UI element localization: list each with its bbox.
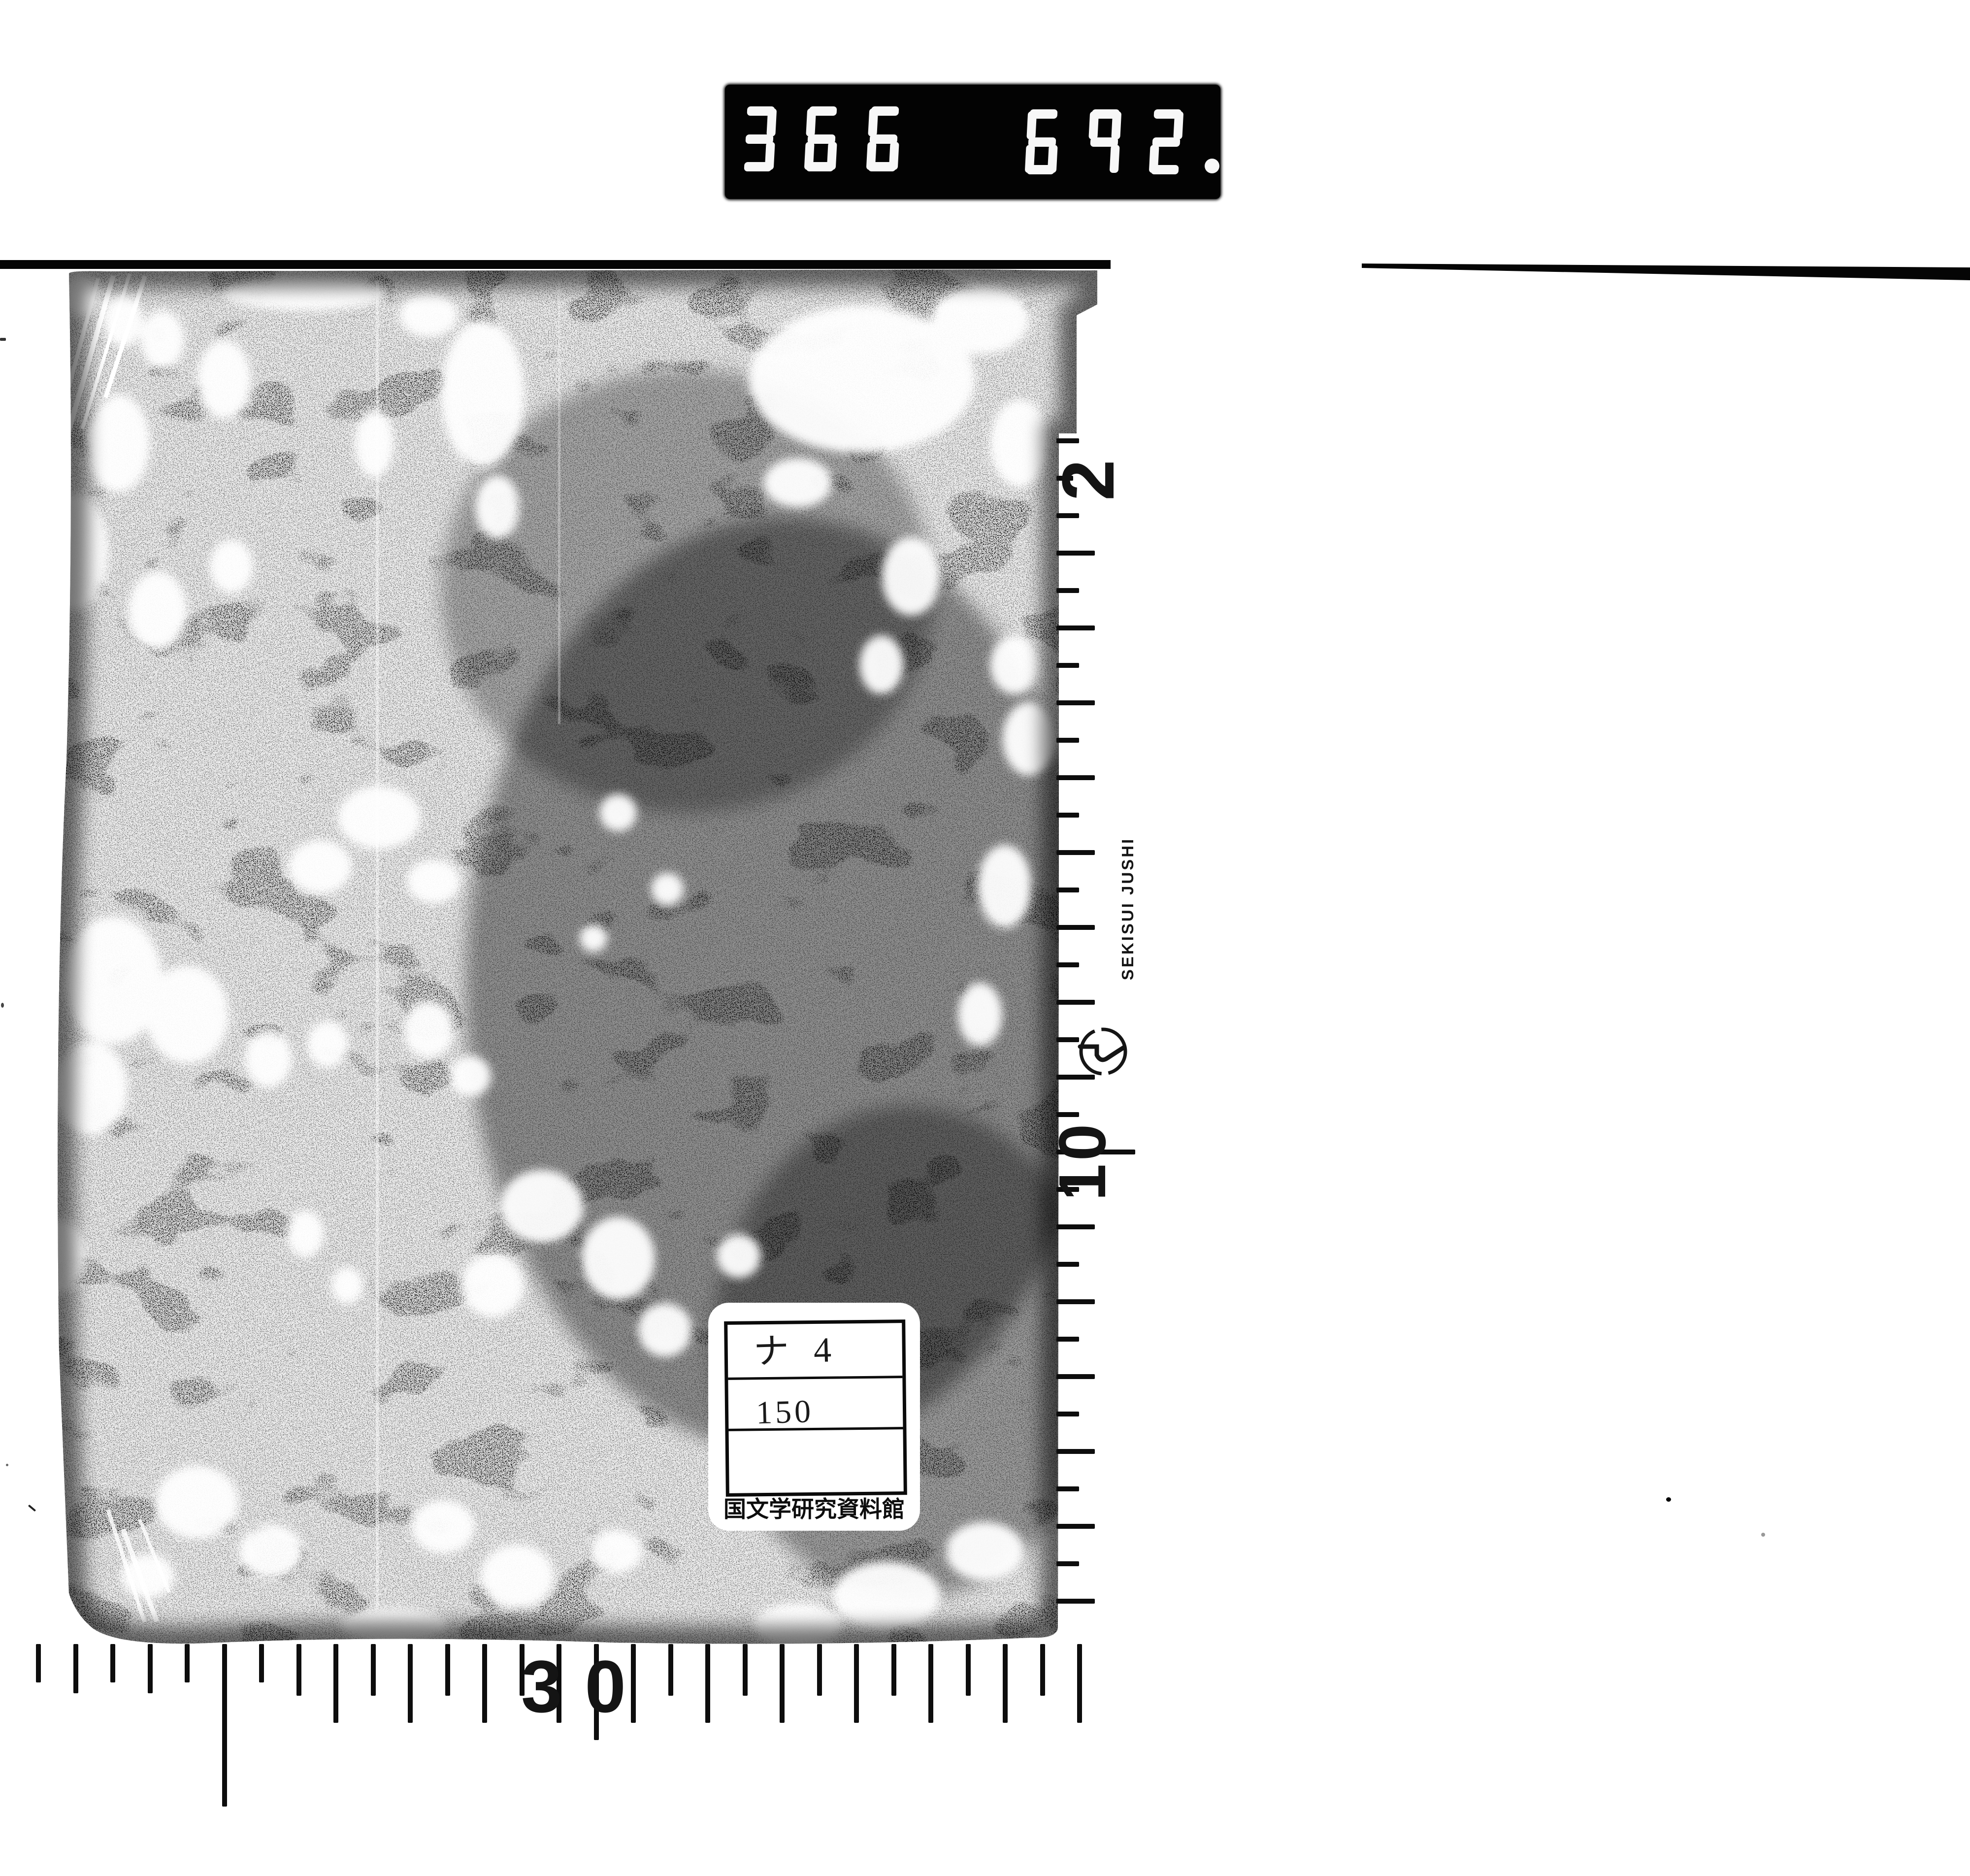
ruler-brand-text: SEKISUI JUSHI bbox=[1117, 810, 1139, 1007]
call-number-row-3 bbox=[728, 1429, 903, 1487]
institution-name: 国文学研究資料館 bbox=[717, 1491, 911, 1524]
ruler-tick bbox=[743, 1644, 748, 1696]
call-number-row-1: ナ 4 bbox=[727, 1323, 902, 1380]
ruler-tick bbox=[1056, 850, 1095, 855]
catalog-label-box: ナ 4 150 bbox=[724, 1319, 907, 1497]
ruler-tick bbox=[296, 1644, 301, 1696]
ruler-tick bbox=[854, 1644, 859, 1723]
ruler-tick bbox=[966, 1644, 971, 1696]
dust-speck bbox=[1666, 1497, 1671, 1502]
ruler-tick bbox=[1056, 1374, 1095, 1379]
ruler-tick bbox=[1056, 625, 1095, 630]
counter-right-digits bbox=[1026, 109, 1219, 174]
seven-seg-digit bbox=[804, 106, 839, 171]
dust-speck bbox=[1761, 1533, 1765, 1537]
ruler-tick bbox=[36, 1644, 41, 1682]
ruler-tick bbox=[110, 1644, 115, 1682]
ruler-tick bbox=[1003, 1644, 1008, 1723]
microfilm-scan-page: 2 SEKISUI JUSHI 10 30 ナ 4 150 国文学研究資料館 bbox=[0, 0, 1970, 1876]
ruler-tick bbox=[371, 1644, 376, 1696]
ruler-tick bbox=[780, 1644, 785, 1723]
ruler-tick bbox=[185, 1644, 190, 1682]
ruler-tick bbox=[73, 1644, 78, 1693]
seven-seg-digit bbox=[1087, 109, 1122, 174]
ruler-tick bbox=[1056, 775, 1095, 780]
seven-seg-digit bbox=[1025, 109, 1060, 174]
ruler-tick bbox=[1056, 1486, 1079, 1491]
ruler-label-2: 2 bbox=[1053, 443, 1122, 517]
ruler-tick bbox=[1056, 663, 1079, 668]
ruler-tick bbox=[148, 1644, 153, 1693]
ruler-tick bbox=[1056, 813, 1079, 818]
seven-seg-digit bbox=[742, 106, 777, 171]
seven-seg-digit bbox=[866, 106, 901, 171]
dust-speck bbox=[0, 338, 6, 341]
ruler-tick bbox=[1040, 1644, 1045, 1696]
ruler-tick bbox=[1056, 738, 1079, 743]
book-cover-photo bbox=[47, 268, 1111, 1647]
ruler-tick bbox=[1056, 588, 1079, 593]
book-cover-texture bbox=[47, 268, 1111, 1647]
ruler-tick bbox=[1056, 1262, 1079, 1267]
ruler-label-10: 10 bbox=[1053, 1117, 1112, 1205]
ruler-tick bbox=[445, 1644, 450, 1696]
frame-line-right bbox=[1362, 259, 1970, 288]
frame-line-left bbox=[0, 260, 1111, 269]
ruler-tick bbox=[928, 1644, 933, 1723]
ruler-tick bbox=[1056, 888, 1079, 892]
ruler-tick bbox=[259, 1644, 264, 1682]
ruler-tick bbox=[1056, 962, 1079, 967]
ruler-tick bbox=[1056, 1224, 1095, 1229]
ruler-tick bbox=[1056, 925, 1095, 930]
ruler-tick bbox=[1056, 1000, 1095, 1005]
ruler-tick bbox=[1077, 1644, 1082, 1723]
ruler-tick bbox=[1056, 1299, 1095, 1304]
counter-left-digits bbox=[744, 106, 899, 171]
counter-decimal-point bbox=[1205, 159, 1219, 173]
sekisui-logo-icon bbox=[1076, 1024, 1130, 1079]
ruler-tick bbox=[333, 1644, 338, 1723]
film-frame-counter bbox=[725, 85, 1220, 199]
ruler-tick bbox=[1056, 1561, 1079, 1566]
dust-speck bbox=[6, 1464, 8, 1466]
ruler-tick bbox=[1056, 1524, 1095, 1529]
ruler-tick bbox=[1056, 1412, 1079, 1416]
call-number-row-2: 150 bbox=[728, 1378, 903, 1431]
call-number-line2: 150 bbox=[755, 1393, 814, 1432]
dust-speck bbox=[28, 1505, 36, 1512]
ruler-tick bbox=[1056, 438, 1079, 443]
ruler-tick bbox=[1056, 1599, 1095, 1604]
ruler-tick bbox=[1056, 1449, 1095, 1454]
ruler-tick bbox=[482, 1644, 487, 1723]
ruler-tick bbox=[1056, 551, 1095, 556]
ruler-tick bbox=[408, 1644, 413, 1723]
ruler-tick bbox=[817, 1644, 822, 1696]
call-number-line1: ナ 4 bbox=[753, 1320, 840, 1374]
seven-seg-digit bbox=[1149, 109, 1184, 174]
ruler-tick bbox=[1056, 700, 1095, 705]
dust-speck bbox=[1, 1003, 4, 1008]
catalog-label-card: ナ 4 150 国文学研究資料館 bbox=[708, 1303, 920, 1531]
ruler-tick bbox=[891, 1644, 896, 1696]
ruler-tick bbox=[705, 1644, 710, 1723]
ruler-tick bbox=[1056, 1337, 1079, 1342]
ruler-tick bbox=[222, 1644, 227, 1807]
ruler-label-30: 30 bbox=[521, 1644, 679, 1729]
